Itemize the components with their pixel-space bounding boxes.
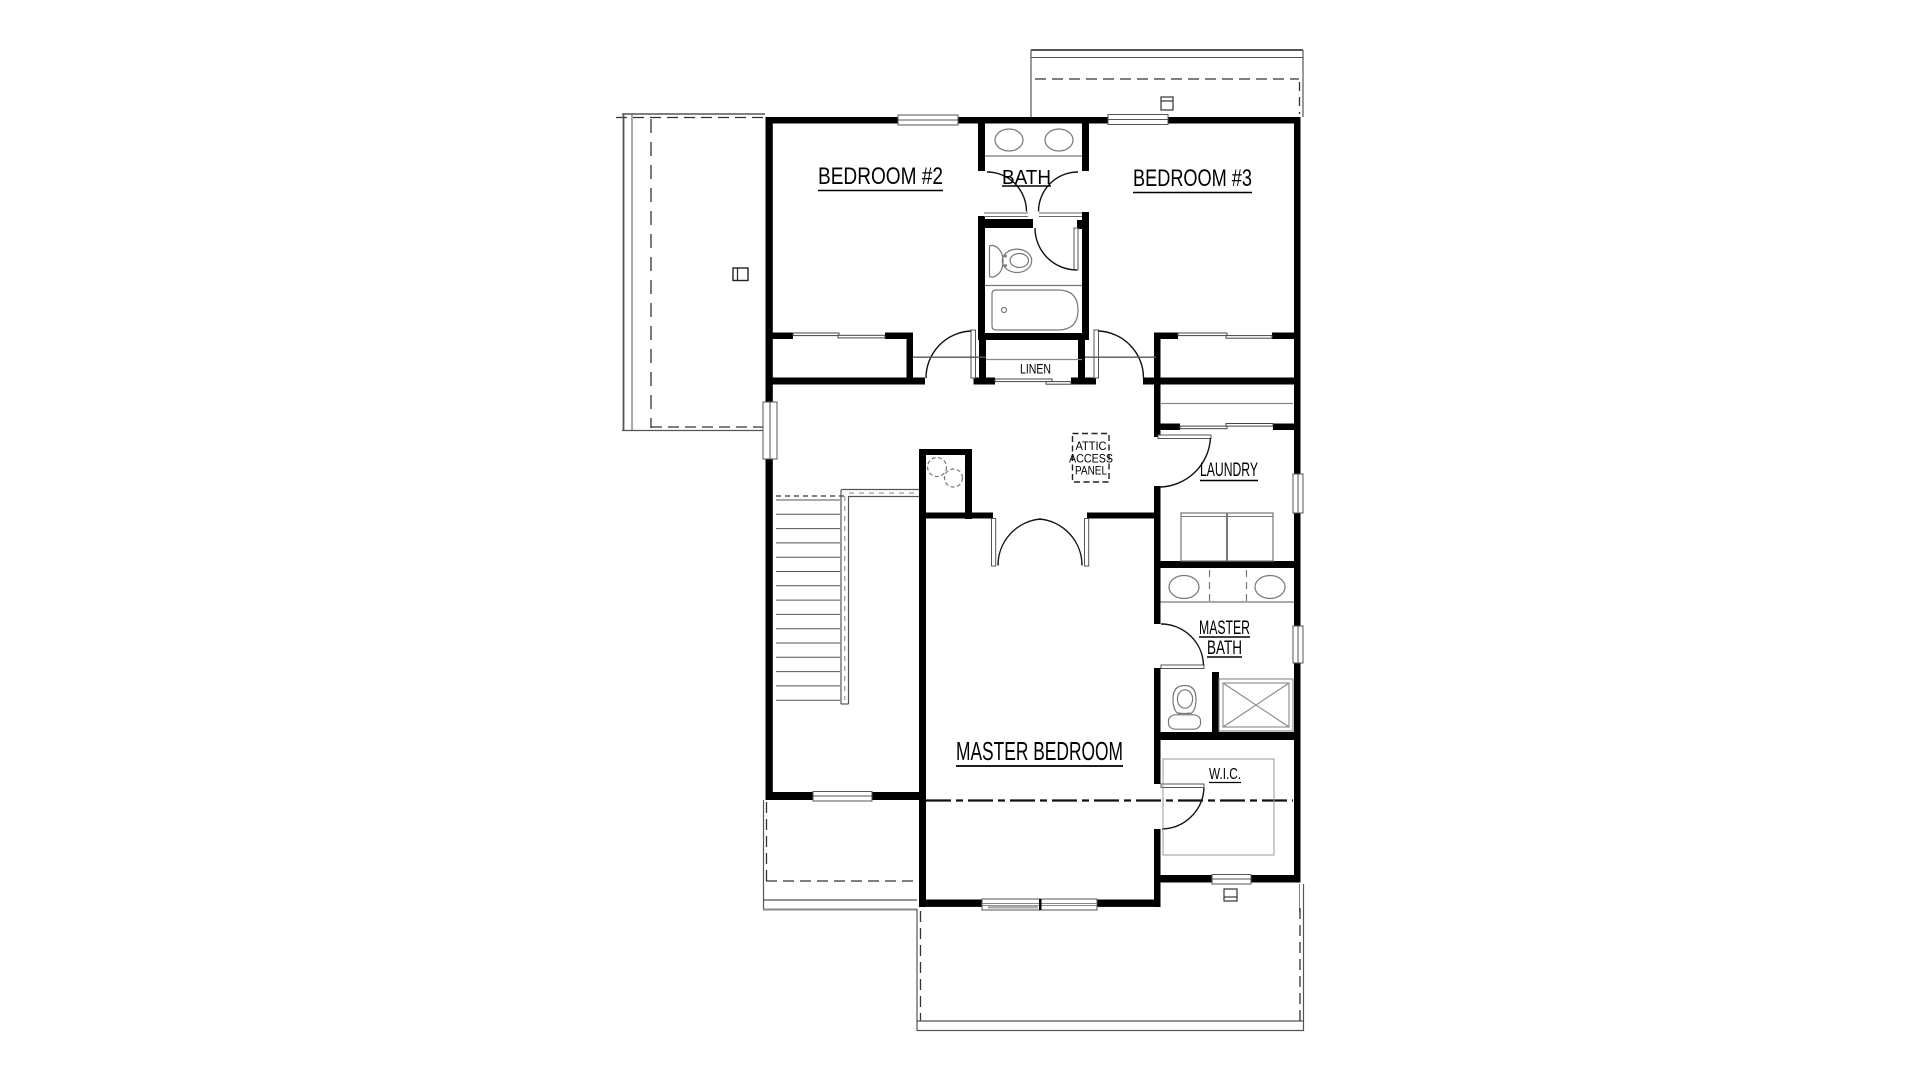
svg-text:ACCESS: ACCESS xyxy=(1069,454,1113,466)
svg-text:BEDROOM #3: BEDROOM #3 xyxy=(1133,165,1252,192)
svg-text:MASTER BEDROOM: MASTER BEDROOM xyxy=(956,736,1123,766)
svg-text:MASTER: MASTER xyxy=(1199,618,1250,639)
svg-text:BEDROOM #2: BEDROOM #2 xyxy=(818,163,943,190)
svg-text:LINEN: LINEN xyxy=(1020,361,1051,377)
svg-text:BATH: BATH xyxy=(1207,638,1242,659)
svg-text:ATTIC: ATTIC xyxy=(1076,441,1107,453)
svg-text:W.I.C.: W.I.C. xyxy=(1209,766,1241,783)
svg-text:PANEL: PANEL xyxy=(1075,466,1108,478)
svg-text:LAUNDRY: LAUNDRY xyxy=(1200,460,1258,481)
